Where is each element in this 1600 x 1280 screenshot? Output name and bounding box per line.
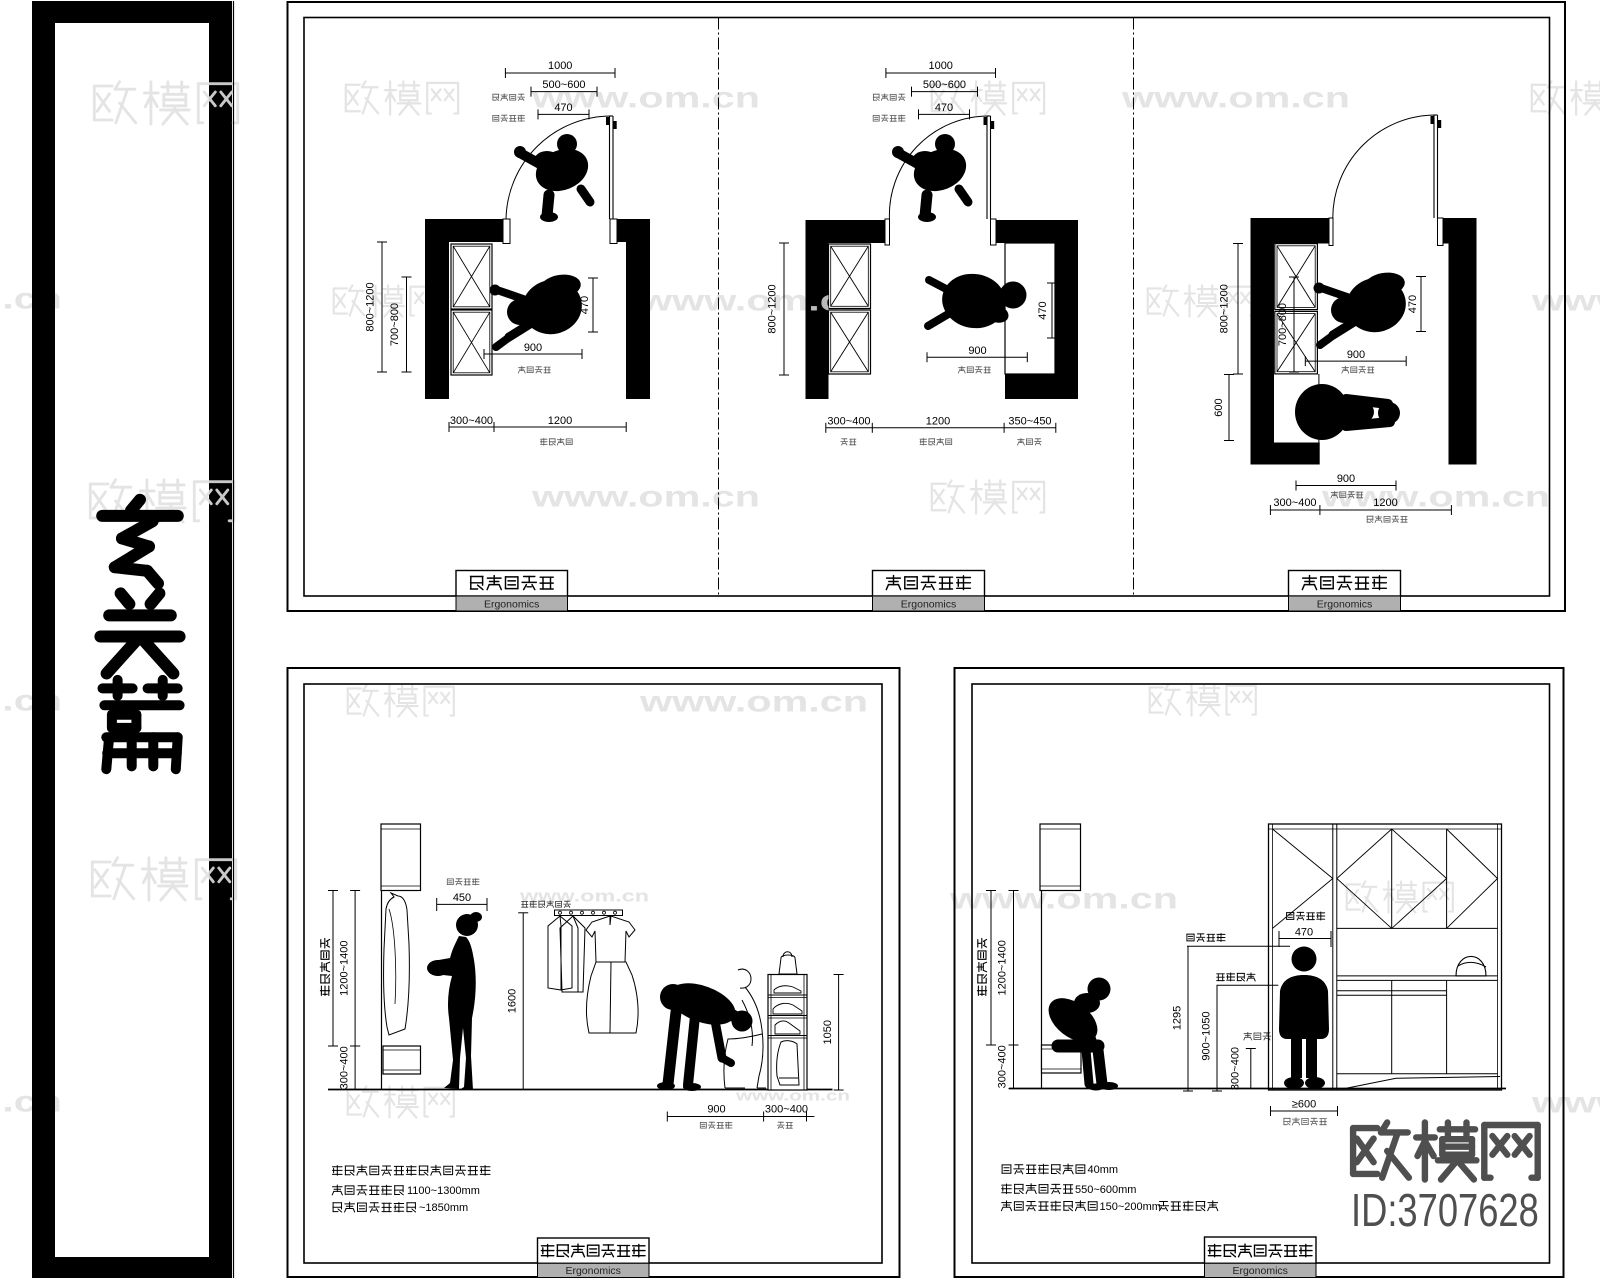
svg-text:1200~1400: 1200~1400	[997, 940, 1009, 995]
svg-text:900: 900	[1337, 473, 1355, 485]
svg-text:500~600: 500~600	[542, 79, 585, 91]
svg-text:300~400: 300~400	[450, 415, 493, 427]
svg-text:www.om.cn: www.om.cn	[1531, 1086, 1600, 1119]
svg-text:500~600: 500~600	[923, 79, 966, 91]
svg-text:1200~1400: 1200~1400	[339, 941, 351, 996]
svg-text:1100~1300mm: 1100~1300mm	[407, 1185, 480, 1197]
svg-text:470: 470	[1407, 295, 1419, 313]
svg-text:600: 600	[1213, 398, 1225, 416]
svg-text:1000: 1000	[928, 60, 952, 72]
svg-text:470: 470	[1037, 301, 1049, 319]
svg-text:40mm: 40mm	[1088, 1164, 1119, 1176]
svg-text:150~200mm: 150~200mm	[1100, 1201, 1161, 1213]
svg-text:550~600mm: 550~600mm	[1075, 1184, 1136, 1196]
svg-text:300~400: 300~400	[997, 1045, 1009, 1088]
svg-text:Ergonomics: Ergonomics	[1317, 599, 1372, 611]
svg-text:www.om.cn: www.om.cn	[639, 685, 868, 718]
svg-text:300~400: 300~400	[1230, 1047, 1242, 1090]
svg-text:Ergonomics: Ergonomics	[901, 599, 956, 611]
svg-text:≥600: ≥600	[1292, 1099, 1316, 1111]
svg-text:470: 470	[1295, 927, 1313, 939]
svg-text:1200: 1200	[1373, 497, 1397, 509]
svg-text:300~400: 300~400	[339, 1046, 351, 1089]
svg-text:~1850mm: ~1850mm	[419, 1202, 468, 1214]
svg-text:450: 450	[453, 892, 471, 904]
svg-text:900: 900	[524, 342, 542, 354]
svg-text:470: 470	[554, 102, 572, 114]
svg-text:900: 900	[968, 345, 986, 357]
svg-text:900~1050: 900~1050	[1201, 1011, 1213, 1060]
svg-text:300~400: 300~400	[1273, 497, 1316, 509]
svg-text:700~800: 700~800	[1277, 303, 1289, 346]
svg-text:350~450: 350~450	[1008, 415, 1051, 427]
svg-text:800~1200: 800~1200	[1219, 284, 1231, 333]
svg-text:1000: 1000	[548, 60, 572, 72]
svg-text:1050: 1050	[822, 1020, 834, 1044]
svg-text:470: 470	[935, 102, 953, 114]
svg-text:Ergonomics: Ergonomics	[1232, 1265, 1287, 1277]
svg-text:www.om.cn: www.om.cn	[531, 480, 760, 513]
svg-text:300~400: 300~400	[827, 415, 870, 427]
svg-text:1200: 1200	[926, 415, 950, 427]
svg-text:Ergonomics: Ergonomics	[565, 1265, 620, 1277]
svg-text:800~1200: 800~1200	[365, 282, 377, 331]
svg-text:900: 900	[707, 1104, 725, 1116]
svg-text:470: 470	[579, 296, 591, 314]
svg-text:Ergonomics: Ergonomics	[484, 599, 539, 611]
svg-text:1600: 1600	[507, 989, 519, 1013]
svg-text:ID:3707628: ID:3707628	[1351, 1184, 1539, 1236]
svg-text:900: 900	[1347, 349, 1365, 361]
svg-text:300~400: 300~400	[765, 1104, 808, 1116]
svg-text:1295: 1295	[1172, 1006, 1184, 1030]
svg-text:1200: 1200	[548, 415, 572, 427]
svg-text:www.om.cn: www.om.cn	[519, 886, 649, 905]
svg-text:www.om.cn: www.om.cn	[1121, 81, 1350, 114]
svg-text:700~800: 700~800	[389, 303, 401, 346]
svg-text:800~1200: 800~1200	[767, 284, 779, 333]
